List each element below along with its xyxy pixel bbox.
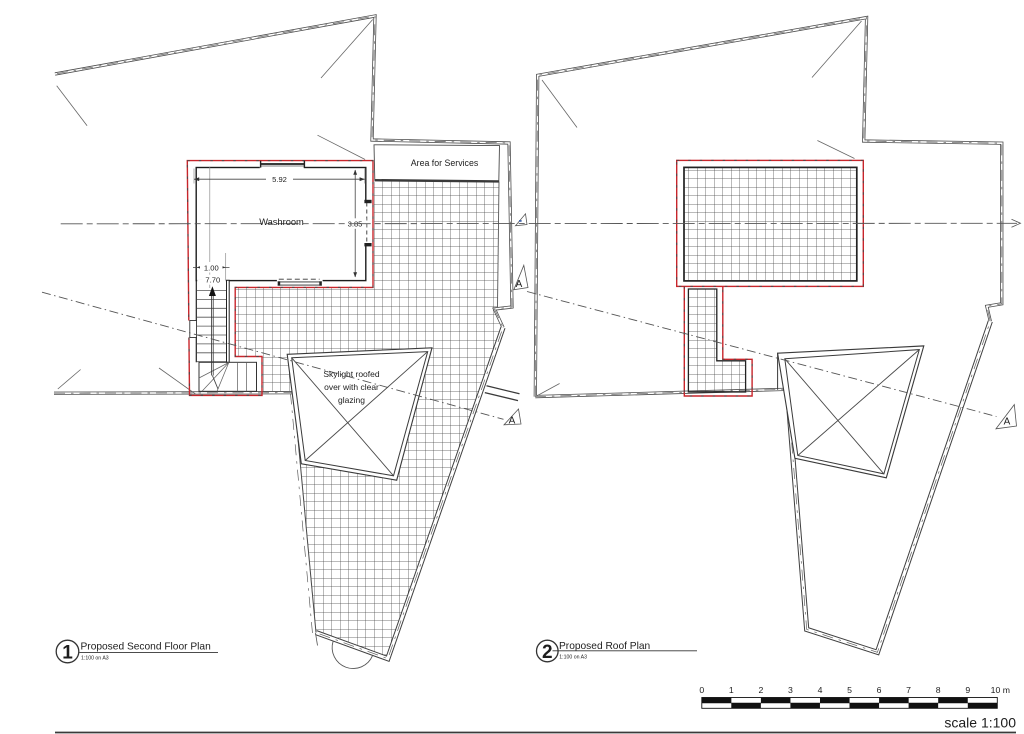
svg-text:1:100 on A3: 1:100 on A3: [81, 655, 109, 661]
svg-text:A: A: [516, 279, 523, 290]
svg-text:Proposed Second Floor Plan: Proposed Second Floor Plan: [81, 642, 211, 653]
svg-text:5.92: 5.92: [272, 175, 287, 184]
svg-text:8: 8: [936, 685, 941, 695]
svg-text:glazing: glazing: [338, 395, 365, 405]
svg-text:2: 2: [758, 685, 763, 695]
svg-text:Washroom: Washroom: [259, 217, 304, 227]
svg-text:A: A: [509, 416, 516, 427]
svg-text:A: A: [1004, 417, 1011, 428]
svg-text:7.70: 7.70: [205, 276, 220, 285]
svg-text:3: 3: [788, 685, 793, 695]
svg-text:7: 7: [906, 685, 911, 695]
svg-text:3.85: 3.85: [348, 220, 363, 229]
svg-text:4: 4: [818, 685, 823, 695]
svg-text:1: 1: [729, 685, 734, 695]
svg-text:0: 0: [699, 685, 704, 695]
svg-text:2: 2: [542, 642, 553, 663]
svg-text:9: 9: [965, 685, 970, 695]
svg-text:Skylight roofed: Skylight roofed: [323, 369, 379, 379]
svg-text:5: 5: [847, 685, 852, 695]
svg-text:scale 1:100: scale 1:100: [944, 715, 1016, 731]
svg-text:6: 6: [877, 685, 882, 695]
svg-text:1:100 on A3: 1:100 on A3: [559, 655, 587, 661]
svg-text:Area for Services: Area for Services: [411, 158, 479, 168]
svg-text:over with clear: over with clear: [324, 382, 379, 392]
svg-text:1: 1: [62, 643, 73, 664]
svg-text:10 m: 10 m: [991, 685, 1010, 695]
svg-text:1.00: 1.00: [204, 263, 219, 272]
